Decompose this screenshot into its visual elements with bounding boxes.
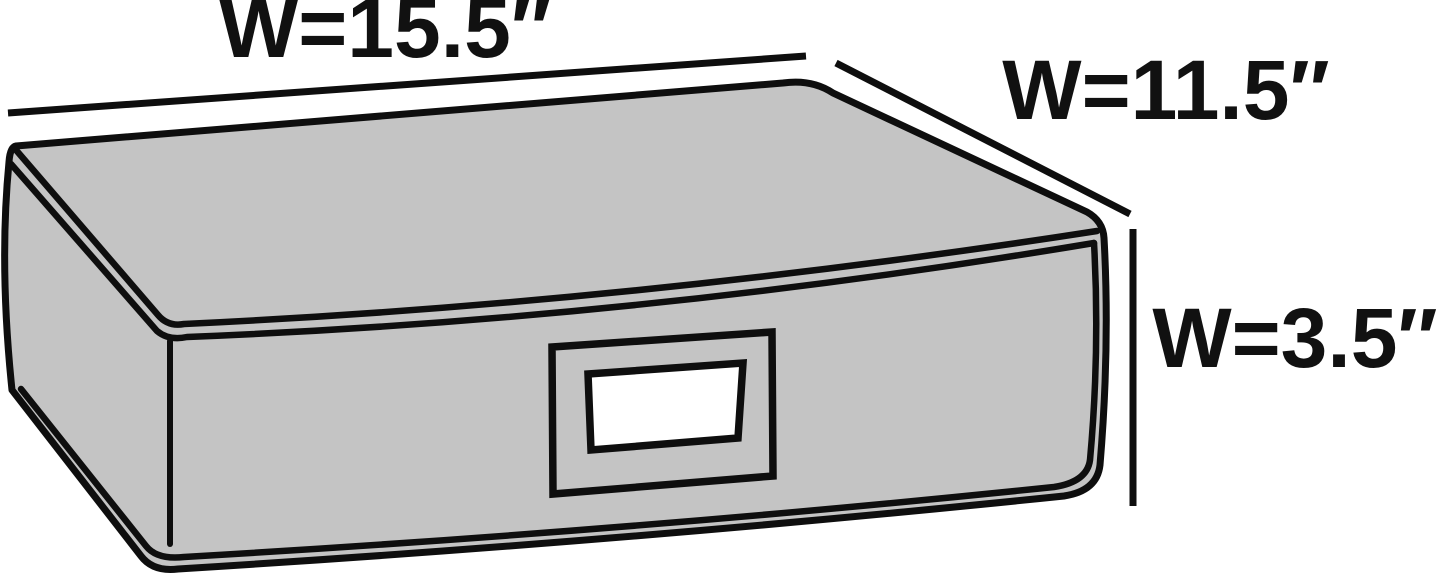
dimension-label-height: W=3.5″ xyxy=(1152,291,1437,385)
storage-box-illustration: W=15.5″ W=11.5″ W=3.5″ xyxy=(0,0,1445,581)
dimension-label-side-width: W=11.5″ xyxy=(1002,43,1329,137)
dimension-diagram: W=15.5″ W=11.5″ W=3.5″ xyxy=(0,0,1445,581)
dimension-label-top-width: W=15.5″ xyxy=(219,0,551,75)
label-holder-window xyxy=(588,363,743,450)
